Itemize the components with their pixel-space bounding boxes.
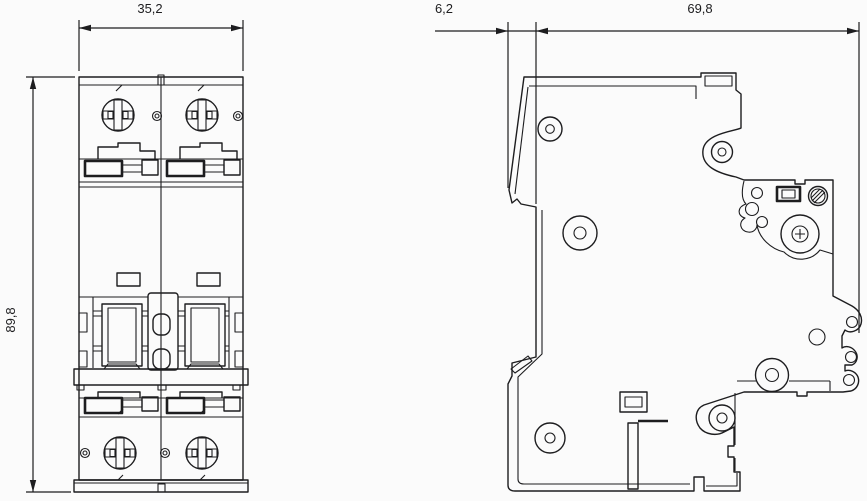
front-body-outline [79,75,243,480]
breaker-dimension-drawing: 35,2 89,8 [0,0,867,501]
technical-drawing-page: 35,2 89,8 [0,0,867,501]
left-edge-notch [79,313,87,332]
right-edge-notch [235,313,243,332]
bottom-terminal-clamp-1 [79,392,161,413]
bottom-test-port-2 [161,449,170,458]
busbar-slot [628,423,638,489]
mold-mark [116,85,204,91]
side-offset-label: 6,2 [435,1,453,16]
side-depth-dimensions: 6,2 69,8 [435,1,859,333]
front-height-dimension: 89,8 [3,77,75,492]
top-terminal-screw-2 [186,99,218,131]
rail-hole [809,329,825,345]
top-terminal-clamp-2 [161,143,243,176]
din-rail-hooks [809,317,858,386]
top-terminal-clamp-1 [79,143,161,176]
label-window-2 [197,273,220,286]
side-view: 6,2 69,8 [435,1,862,491]
bottom-terminal-screw-1 [104,437,136,469]
front-height-label: 89,8 [3,307,18,332]
sealing-screw [809,187,828,206]
bottom-terminal-screw-2 [186,437,218,469]
front-width-dimension: 35,2 [79,1,243,71]
top-clip-tab [705,76,732,86]
front-width-label: 35,2 [137,1,162,16]
front-view: 35,2 89,8 [3,1,248,492]
calibration-window-inner [782,190,795,198]
top-test-port-2 [234,112,243,121]
rivet [535,117,789,453]
bottom-terminal-clamp-2 [161,392,243,413]
left-edge-notch [79,351,87,367]
lower-window-inner [625,397,642,407]
top-test-port-1 [153,112,162,121]
lower-window [620,392,647,412]
shaft-rivet [781,215,819,253]
calibration-window [777,187,800,201]
side-depth-label: 69,8 [687,1,712,16]
label-window-1 [117,273,140,286]
bottom-test-port-1 [81,449,90,458]
right-edge-notch [235,351,243,367]
top-terminal-screw-1 [102,99,134,131]
bottom-strip [74,480,248,492]
